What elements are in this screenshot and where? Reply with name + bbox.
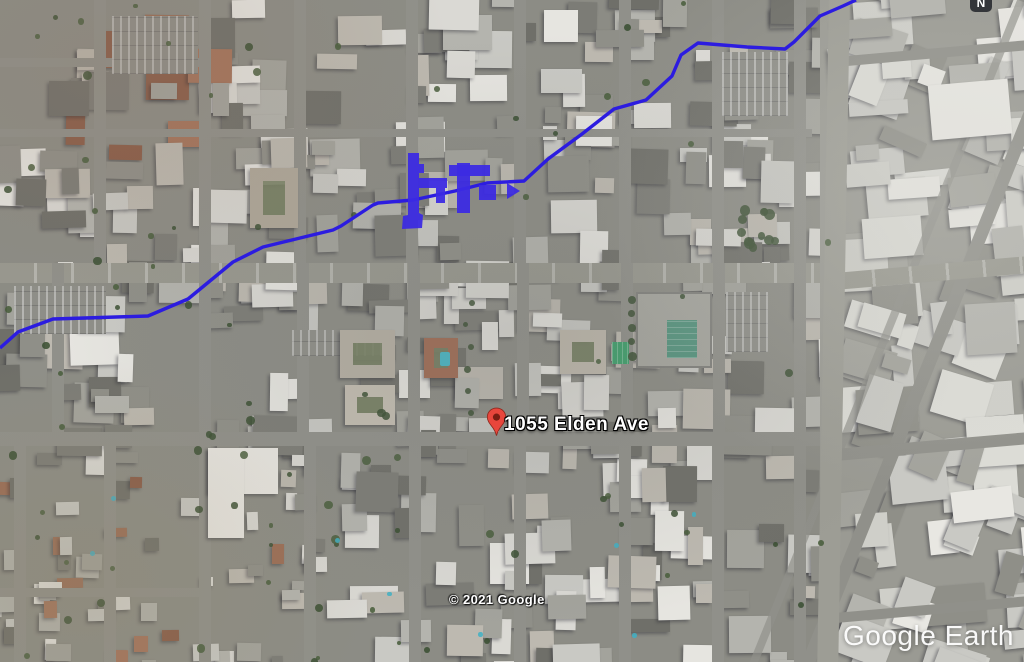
map-texture xyxy=(499,310,515,338)
map-texture xyxy=(728,361,765,395)
map-texture xyxy=(548,595,587,619)
map-texture xyxy=(269,373,287,412)
map-texture xyxy=(544,10,578,42)
map-texture xyxy=(340,330,395,378)
map-texture xyxy=(584,375,609,410)
tree-texture xyxy=(335,538,340,543)
compass-north-label: N xyxy=(977,0,986,10)
map-texture xyxy=(445,150,488,182)
tree-texture xyxy=(628,296,636,304)
tree-texture xyxy=(773,542,778,547)
map-texture xyxy=(162,630,179,641)
map-texture xyxy=(316,214,338,251)
map-texture xyxy=(300,91,341,125)
tree-texture xyxy=(362,456,371,465)
map-texture xyxy=(447,51,475,79)
map-texture xyxy=(794,263,806,432)
tree-texture xyxy=(628,324,636,332)
map-texture xyxy=(338,15,382,45)
tree-texture xyxy=(362,392,368,398)
map-texture xyxy=(355,472,398,513)
map-texture xyxy=(247,512,259,530)
tree-texture xyxy=(740,205,750,215)
tree-texture xyxy=(269,523,273,527)
map-texture xyxy=(362,592,405,614)
map-texture xyxy=(548,155,590,192)
tree-texture xyxy=(82,157,88,163)
tree-texture xyxy=(255,224,261,230)
map-texture xyxy=(312,141,335,155)
map-texture xyxy=(0,364,21,391)
map-texture xyxy=(199,0,211,263)
map-texture xyxy=(628,618,670,631)
tree-texture xyxy=(370,607,375,612)
map-texture xyxy=(61,384,82,400)
tree-texture xyxy=(90,551,95,556)
tree-texture xyxy=(596,359,601,364)
map-texture xyxy=(250,168,298,228)
map-texture xyxy=(44,601,58,618)
map-texture xyxy=(42,210,86,228)
map-texture xyxy=(553,643,601,662)
tree-texture xyxy=(688,141,694,147)
map-texture xyxy=(312,174,337,193)
tree-texture xyxy=(335,43,341,49)
map-texture xyxy=(722,52,788,116)
tree-texture xyxy=(133,4,138,9)
map-texture xyxy=(14,432,26,662)
map-texture xyxy=(612,342,629,364)
map-texture xyxy=(446,625,482,656)
tree-texture xyxy=(619,522,624,527)
map-texture xyxy=(658,408,676,429)
tree-texture xyxy=(424,647,430,653)
tree-texture xyxy=(185,301,193,309)
tree-texture xyxy=(628,310,635,317)
tree-texture xyxy=(9,451,18,460)
map-texture xyxy=(208,448,244,538)
map-texture xyxy=(950,485,1014,523)
map-texture xyxy=(695,584,711,603)
tree-texture xyxy=(604,93,611,100)
tree-texture xyxy=(351,212,357,218)
tree-texture xyxy=(468,410,474,416)
map-texture xyxy=(590,567,605,599)
tree-texture xyxy=(64,616,72,624)
tree-texture xyxy=(245,43,253,51)
map-texture xyxy=(759,524,784,542)
tree-texture xyxy=(785,369,793,377)
map-texture xyxy=(482,322,498,350)
map-texture xyxy=(712,0,724,263)
map-texture xyxy=(861,215,923,259)
map-texture xyxy=(437,449,468,463)
compass-north-badge[interactable]: N xyxy=(970,0,992,12)
map-texture xyxy=(112,16,198,74)
map-texture xyxy=(127,186,153,209)
tree-texture xyxy=(523,194,528,199)
tree-texture xyxy=(148,233,153,238)
tree-texture xyxy=(681,1,686,6)
tree-texture xyxy=(111,496,116,501)
tree-texture xyxy=(478,632,482,636)
map-texture xyxy=(641,468,666,502)
map-texture xyxy=(663,466,697,502)
map-texture xyxy=(517,263,529,432)
map-texture xyxy=(514,432,526,662)
tree-texture xyxy=(166,41,171,46)
map-texture xyxy=(282,589,300,599)
map-texture xyxy=(117,354,133,383)
map-texture xyxy=(428,84,456,102)
map-texture xyxy=(664,213,691,236)
map-texture xyxy=(544,107,560,123)
tree-texture xyxy=(40,510,45,515)
map-texture xyxy=(81,554,101,571)
satellite-map[interactable] xyxy=(0,0,1024,662)
map-texture xyxy=(327,599,368,618)
map-texture xyxy=(14,286,106,334)
map-texture xyxy=(159,280,203,303)
tree-texture xyxy=(628,352,637,361)
map-texture xyxy=(61,167,78,193)
tree-texture xyxy=(798,602,804,608)
map-texture xyxy=(440,242,462,259)
tree-texture xyxy=(738,215,747,224)
tree-texture xyxy=(315,604,323,612)
tree-texture xyxy=(209,93,214,98)
map-texture xyxy=(436,562,457,585)
map-texture xyxy=(760,161,794,203)
map-texture xyxy=(155,234,178,261)
map-texture xyxy=(550,199,597,232)
tree-texture xyxy=(468,344,474,350)
map-texture xyxy=(607,556,656,590)
map-texture xyxy=(134,636,148,652)
map-texture xyxy=(488,449,510,469)
map-texture xyxy=(594,177,613,192)
tree-texture xyxy=(231,502,237,508)
map-texture xyxy=(928,79,1012,141)
tree-texture xyxy=(266,580,271,585)
tree-texture xyxy=(246,401,252,407)
map-texture xyxy=(492,0,516,7)
tree-texture xyxy=(93,257,101,265)
map-texture xyxy=(628,149,668,185)
map-texture xyxy=(237,642,261,660)
map-texture xyxy=(336,169,365,187)
map-texture xyxy=(541,519,571,551)
map-texture xyxy=(106,161,144,179)
tree-texture xyxy=(113,284,119,290)
tree-texture xyxy=(513,116,518,121)
map-texture xyxy=(713,263,725,432)
map-texture xyxy=(306,281,327,304)
map-texture xyxy=(619,432,631,662)
tree-texture xyxy=(197,644,205,652)
map-texture xyxy=(560,330,606,374)
map-texture xyxy=(56,502,79,515)
map-texture xyxy=(508,284,552,310)
map-texture xyxy=(145,538,159,551)
map-texture xyxy=(151,83,177,99)
tree-texture xyxy=(600,496,606,502)
tree-texture xyxy=(227,323,231,327)
map-texture xyxy=(406,0,418,263)
tree-texture xyxy=(209,433,216,440)
map-texture xyxy=(49,81,89,116)
tree-texture xyxy=(484,638,490,644)
map-texture xyxy=(304,432,316,662)
map-texture xyxy=(232,0,265,18)
tree-texture xyxy=(665,573,670,578)
map-texture xyxy=(440,352,450,366)
map-texture xyxy=(60,537,73,555)
map-texture xyxy=(667,320,697,358)
tree-texture xyxy=(387,592,391,596)
map-texture xyxy=(686,152,707,184)
map-texture xyxy=(109,145,142,161)
tree-texture xyxy=(394,454,401,461)
map-texture xyxy=(251,114,285,129)
map-texture xyxy=(0,145,21,183)
tree-texture xyxy=(5,306,12,313)
tree-texture xyxy=(671,510,678,517)
tree-texture xyxy=(680,294,685,299)
map-texture xyxy=(104,432,116,662)
tree-texture xyxy=(311,658,318,662)
tree-texture xyxy=(818,540,824,546)
tree-texture xyxy=(53,15,58,20)
map-texture xyxy=(655,511,684,551)
map-texture xyxy=(964,301,1017,355)
map-texture xyxy=(248,565,263,576)
map-texture xyxy=(688,527,703,565)
tree-texture xyxy=(632,633,637,638)
map-texture xyxy=(541,69,582,93)
map-texture xyxy=(855,144,879,160)
tree-texture xyxy=(744,237,753,246)
map-texture xyxy=(408,263,420,432)
tree-texture xyxy=(692,512,696,516)
map-texture xyxy=(712,432,724,662)
map-texture xyxy=(272,656,283,662)
tree-texture xyxy=(760,208,768,216)
map-texture xyxy=(459,504,484,546)
tree-texture xyxy=(486,530,494,538)
tree-texture xyxy=(24,653,31,660)
tree-texture xyxy=(395,528,399,532)
map-texture xyxy=(0,588,205,597)
map-texture xyxy=(428,0,479,30)
map-texture xyxy=(15,179,46,207)
map-texture xyxy=(609,0,659,10)
map-texture xyxy=(213,83,229,116)
map-texture xyxy=(155,142,184,184)
map-texture xyxy=(317,53,357,69)
map-texture xyxy=(634,103,671,128)
map-texture xyxy=(130,476,143,487)
tree-texture xyxy=(240,451,248,459)
tree-texture xyxy=(465,388,471,394)
map-texture xyxy=(888,177,941,200)
map-texture xyxy=(409,432,421,662)
tree-texture xyxy=(324,501,333,510)
map-texture xyxy=(46,644,71,661)
map-texture xyxy=(514,0,526,263)
map-texture xyxy=(470,75,507,102)
map-texture xyxy=(94,0,106,263)
tree-texture xyxy=(172,226,176,230)
tree-texture xyxy=(78,18,84,24)
tree-texture xyxy=(825,239,832,246)
map-texture xyxy=(658,585,691,619)
tree-texture xyxy=(464,366,471,373)
map-texture xyxy=(845,162,891,189)
map-texture xyxy=(533,312,563,327)
map-texture xyxy=(619,0,631,263)
tree-texture xyxy=(151,264,155,268)
tree-texture xyxy=(35,34,40,39)
map-texture xyxy=(141,603,157,621)
map-texture xyxy=(292,581,304,590)
google-earth-logo: Google Earth xyxy=(843,620,1014,652)
map-texture xyxy=(116,452,138,463)
tree-texture xyxy=(642,79,650,87)
tree-texture xyxy=(35,535,40,540)
google-earth-viewport: 1055 Elden Ave © 2021 Google Google Eart… xyxy=(0,0,1024,662)
map-texture xyxy=(794,0,806,263)
map-texture xyxy=(272,544,284,564)
map-texture xyxy=(95,396,129,413)
map-texture xyxy=(726,292,768,352)
tree-texture xyxy=(42,342,50,350)
placemark-label: 1055 Elden Ave xyxy=(504,414,649,436)
map-texture xyxy=(199,263,211,432)
map-copyright: © 2021 Google xyxy=(449,592,545,607)
